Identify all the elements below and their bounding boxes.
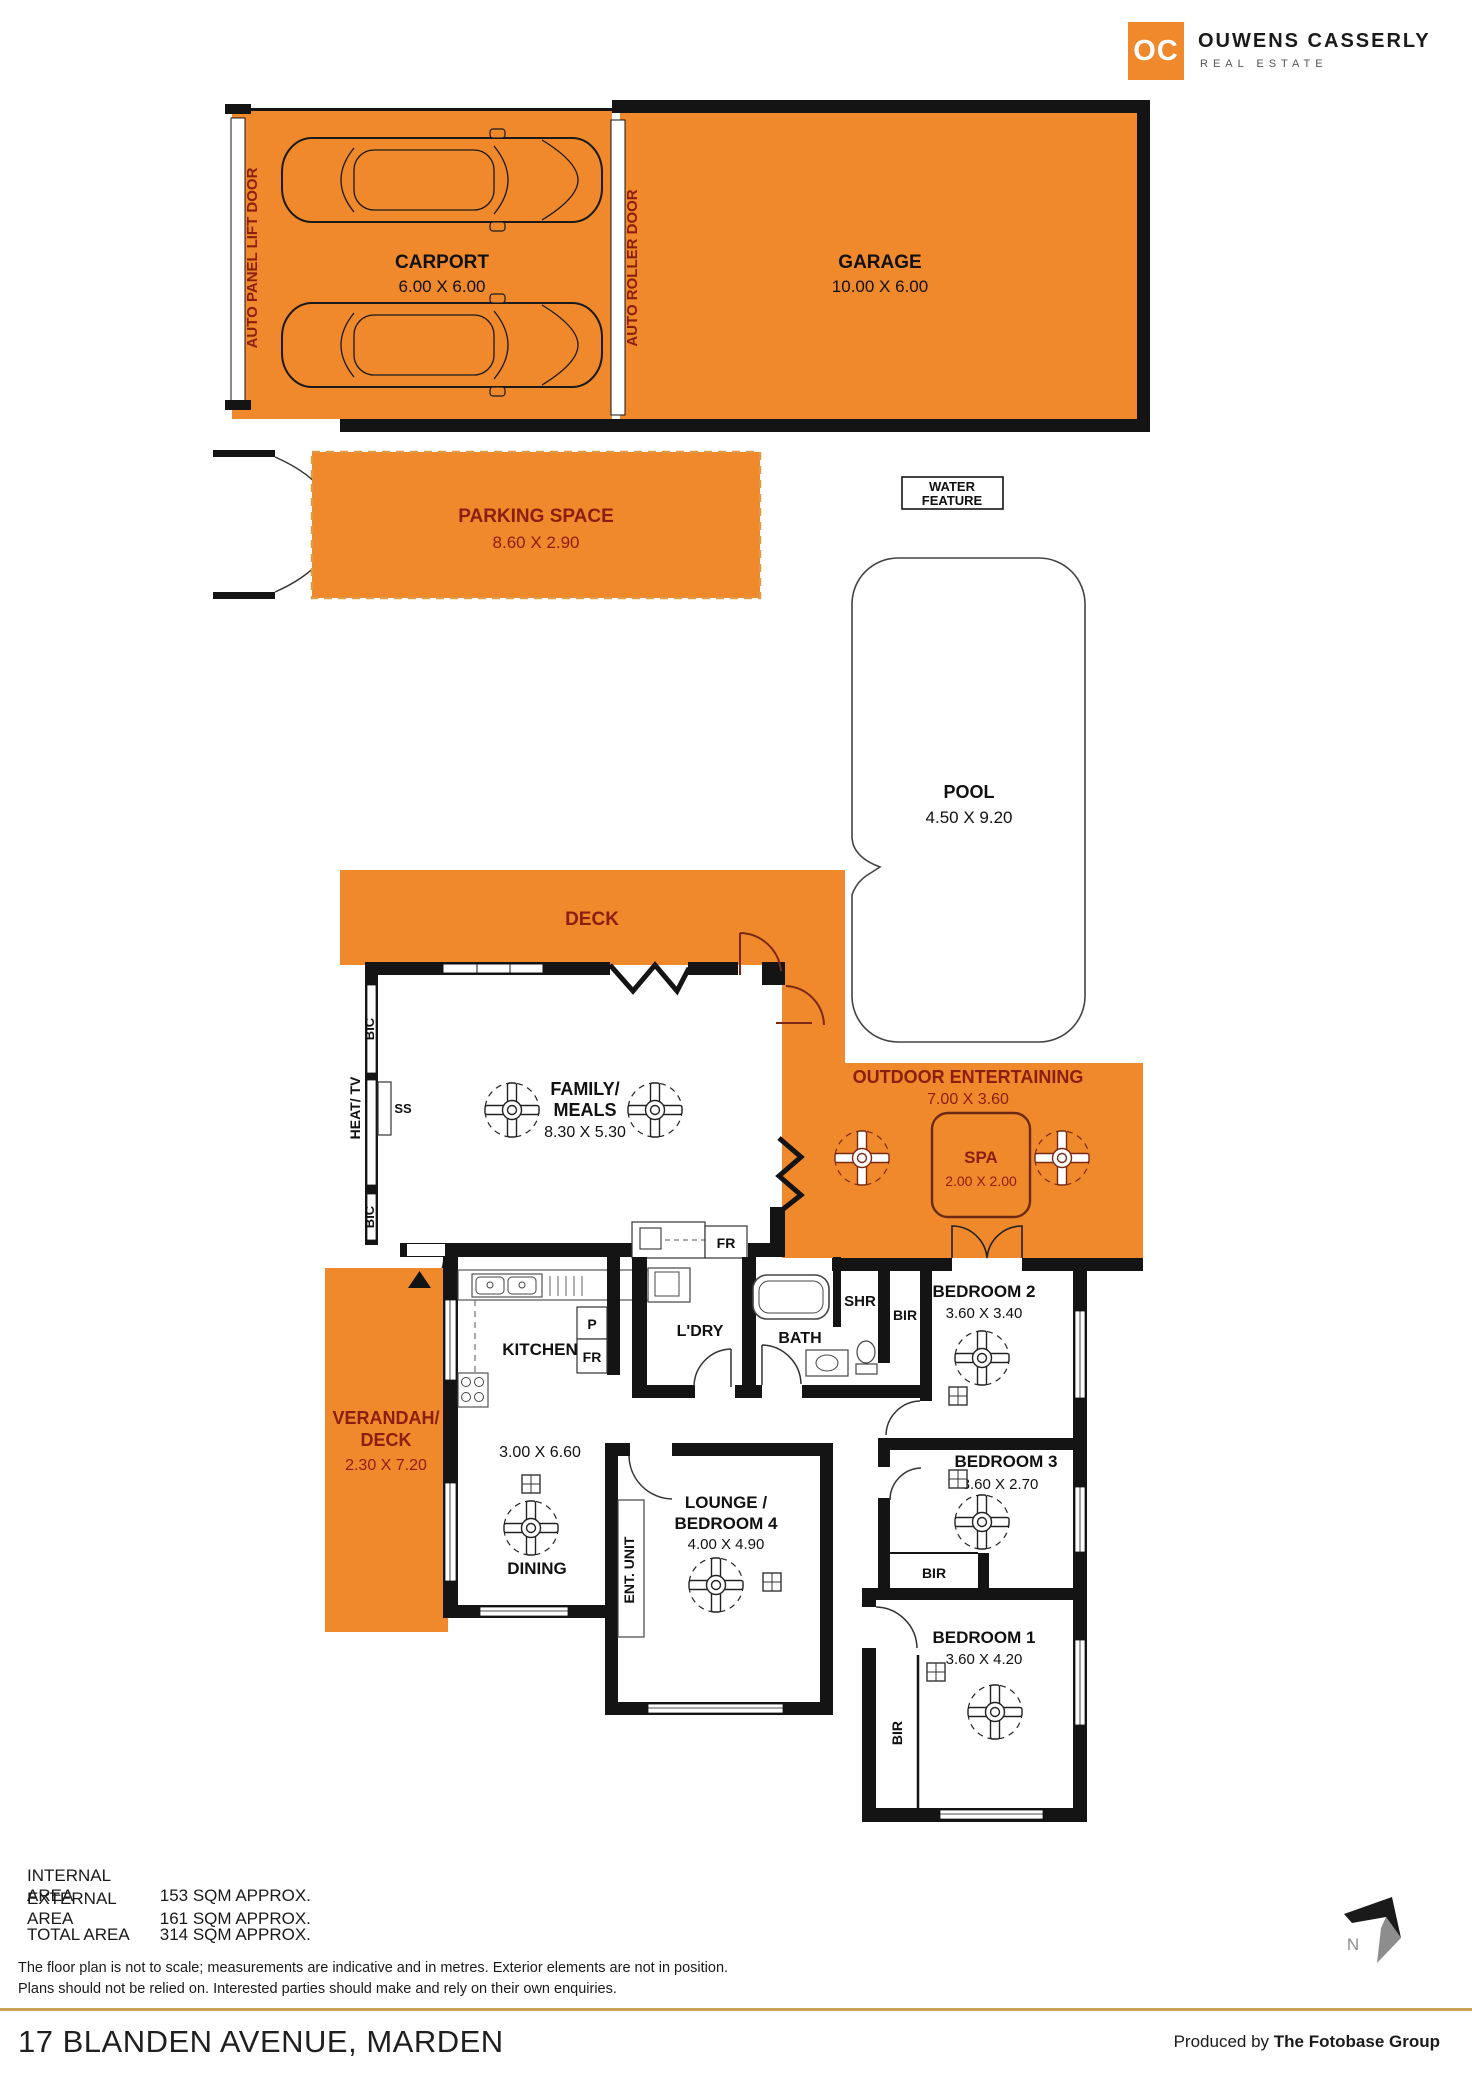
trough <box>648 1268 690 1302</box>
kitchen-dims: 3.00 X 6.60 <box>499 1444 581 1461</box>
kitchen-label: KITCHEN <box>502 1340 578 1359</box>
bed3-dims: 3.60 X 2.70 <box>962 1476 1039 1493</box>
vent-icon <box>522 1475 540 1493</box>
shr-label: SHR <box>844 1293 876 1310</box>
ceiling-fan-icon <box>968 1685 1022 1739</box>
ceiling-fan-icon <box>955 1495 1009 1549</box>
verandah-area: VERANDAH/ DECK 2.30 X 7.20 <box>325 1268 448 1632</box>
fr-label: FR <box>583 1349 602 1365</box>
bir-label: BIR <box>922 1565 946 1581</box>
lounge-label2: BEDROOM 4 <box>675 1514 779 1533</box>
vent-icon <box>927 1663 945 1681</box>
stove <box>458 1373 488 1407</box>
total-area-row: TOTAL AREA 314 SQM APPROX. <box>27 1925 311 1948</box>
disclaimer-line1: The floor plan is not to scale; measurem… <box>18 1958 728 1979</box>
bir-label: BIR <box>893 1307 917 1323</box>
total-area-label: TOTAL AREA <box>27 1925 155 1945</box>
parking-area: PARKING SPACE 8.60 X 2.90 <box>213 450 760 599</box>
ent-unit-label: ENT. UNIT <box>621 1536 637 1603</box>
water-feature-line1: WATER <box>929 479 976 494</box>
door-arc <box>886 1401 920 1435</box>
disclaimer: The floor plan is not to scale; measurem… <box>18 1958 728 2000</box>
pool-label: POOL <box>943 782 994 802</box>
outdoor-dims: 7.00 X 3.60 <box>927 1091 1009 1108</box>
lounge-label1: LOUNGE / <box>685 1493 767 1512</box>
bed2-dims: 3.60 X 3.40 <box>946 1305 1023 1322</box>
verandah-dims: 2.30 X 7.20 <box>345 1457 427 1474</box>
verandah-label2: DECK <box>360 1430 411 1450</box>
pool-dims: 4.50 X 9.20 <box>926 808 1013 827</box>
door-arc <box>876 1607 917 1648</box>
laundry: L'DRY <box>632 1257 758 1398</box>
verandah-label1: VERANDAH/ <box>332 1408 439 1428</box>
ss-unit <box>378 1082 391 1135</box>
p-label: P <box>587 1316 596 1332</box>
bed3-label: BEDROOM 3 <box>955 1452 1058 1471</box>
vent-icon <box>949 1387 967 1405</box>
deck-label: DECK <box>565 909 619 930</box>
spa-label: SPA <box>964 1148 998 1167</box>
family-dims: 8.30 X 5.30 <box>544 1124 626 1141</box>
water-feature-line2: FEATURE <box>922 493 983 508</box>
door-arc <box>762 1345 801 1385</box>
carport-label: CARPORT <box>395 252 489 273</box>
car-icon <box>282 294 602 396</box>
dining-label: DINING <box>507 1559 567 1578</box>
bed1-label: BEDROOM 1 <box>933 1628 1036 1647</box>
car-icon <box>282 129 602 231</box>
north-arrow-icon: N <box>1344 1897 1401 1963</box>
garage-dims: 10.00 X 6.00 <box>832 277 928 296</box>
produced-company: The Fotobase Group <box>1274 2032 1440 2051</box>
produced-prefix: Produced by <box>1174 2032 1274 2051</box>
area-summary: INTERNAL AREA 153 SQM APPROX. EXTERNAL A… <box>27 1866 311 1948</box>
family-room: BIC HEAT/ TV BIC SS FR FAMILY/ MEALS 8.3… <box>347 933 824 1294</box>
window <box>443 964 543 973</box>
kitchen-dining: P FR KITCHEN 3.00 X 6.60 DINING <box>443 1257 688 1618</box>
footer-divider <box>0 2008 1472 2011</box>
disclaimer-line2: Plans should not be relied on. Intereste… <box>18 1979 728 2000</box>
ceiling-fan-icon <box>504 1501 558 1555</box>
external-area-row: EXTERNAL AREA 161 SQM APPROX. <box>27 1889 311 1912</box>
ceiling-fan-icon <box>689 1558 743 1612</box>
bir-label: BIR <box>889 1721 905 1745</box>
ldry-label: L'DRY <box>677 1323 724 1340</box>
vent-icon <box>763 1573 781 1591</box>
water-feature: WATER FEATURE <box>902 477 1003 509</box>
family-label1: FAMILY/ <box>550 1079 619 1099</box>
carport-dims: 6.00 X 6.00 <box>399 277 486 296</box>
bath-label: BATH <box>778 1330 821 1347</box>
internal-area-row: INTERNAL AREA 153 SQM APPROX. <box>27 1866 311 1889</box>
bic-label: BIC <box>362 1017 377 1040</box>
total-area-value: 314 SQM APPROX. <box>160 1925 311 1944</box>
heat-tv-label: HEAT/ TV <box>347 1076 363 1139</box>
ss-label: SS <box>394 1101 412 1116</box>
vanity <box>806 1350 848 1376</box>
produced-by: Produced by The Fotobase Group <box>1174 2032 1440 2052</box>
lounge-dims: 4.00 X 4.90 <box>688 1536 765 1553</box>
pool-area: POOL 4.50 X 9.20 <box>852 558 1085 1042</box>
floorplan-drawing: AUTO PANEL LIFT DOOR CARPORT 6.00 X 6.00… <box>0 0 1472 2081</box>
bathroom: BATH SHR <box>742 1257 922 1398</box>
lounge-room: ENT. UNIT LOUNGE / BEDROOM 4 4.00 X 4.90 <box>605 1443 833 1715</box>
floorplan-page: OC OUWENS CASSERLY REAL ESTATE <box>0 0 1472 2081</box>
external-area-label: EXTERNAL AREA <box>27 1889 155 1929</box>
auto-roller-label: AUTO ROLLER DOOR <box>624 189 641 346</box>
toilet <box>857 1341 875 1363</box>
ceiling-fan-icon <box>955 1331 1009 1385</box>
bic-label: BIC <box>362 1205 377 1228</box>
door-arc <box>629 1456 672 1499</box>
parking-label: PARKING SPACE <box>458 506 614 527</box>
door-arc <box>694 1349 731 1387</box>
fr-label: FR <box>717 1235 736 1251</box>
parking-dims: 8.60 X 2.90 <box>493 533 580 552</box>
bedroom-wing: BIR BEDROOM 2 3.60 X 3.40 BEDROOM 3 3.60… <box>832 1258 1143 1822</box>
north-label: N <box>1347 1935 1359 1954</box>
outdoor-label: OUTDOOR ENTERTAINING <box>853 1067 1084 1087</box>
spa-dims: 2.00 X 2.00 <box>945 1173 1017 1189</box>
bed2-label: BEDROOM 2 <box>933 1282 1036 1301</box>
property-address: 17 BLANDEN AVENUE, MARDEN <box>18 2024 504 2060</box>
auto-panel-label: AUTO PANEL LIFT DOOR <box>244 167 261 348</box>
family-label2: MEALS <box>554 1100 617 1120</box>
bed1-dims: 3.60 X 4.20 <box>946 1651 1023 1668</box>
garage-label: GARAGE <box>838 252 921 273</box>
vent-icon <box>949 1470 967 1488</box>
carport-area: AUTO PANEL LIFT DOOR CARPORT 6.00 X 6.00 <box>225 104 612 419</box>
door-arc <box>890 1468 921 1500</box>
